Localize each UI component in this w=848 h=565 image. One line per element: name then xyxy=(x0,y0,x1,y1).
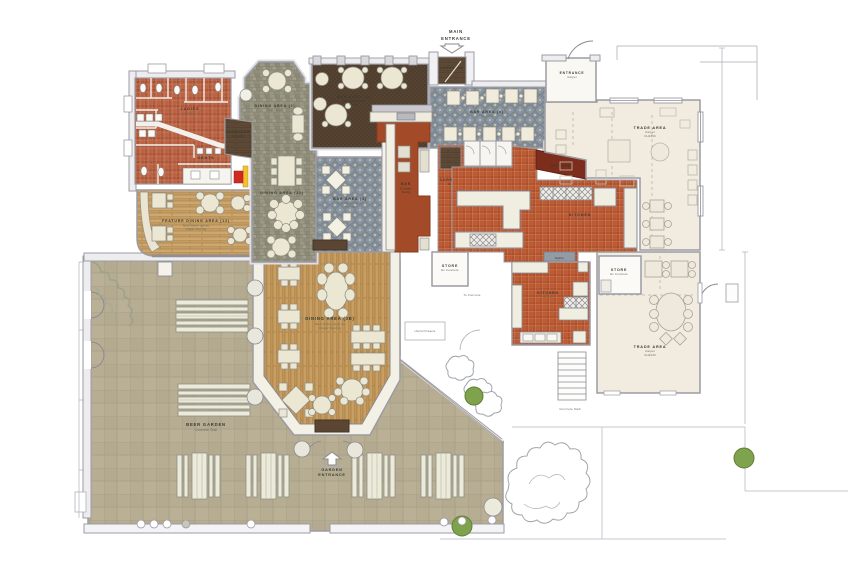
svg-text:Concrete Slab: Concrete Slab xyxy=(195,428,218,432)
svg-text:flooring: flooring xyxy=(349,103,359,107)
svg-text:flooring: flooring xyxy=(345,205,356,209)
svg-text:timber flooring: timber flooring xyxy=(319,326,341,330)
svg-text:New timber: New timber xyxy=(231,134,244,138)
svg-text:ENTRANCE: ENTRANCE xyxy=(441,36,471,41)
svg-text:ENTRANCE: ENTRANCE xyxy=(440,66,463,70)
svg-text:DINING AREA (3B): DINING AREA (3B) xyxy=(305,316,354,321)
svg-text:flooring: flooring xyxy=(402,190,411,194)
svg-text:Concrete Slab: Concrete Slab xyxy=(559,407,581,411)
svg-text:Jayline: Jayline xyxy=(554,256,564,260)
svg-text:To Concrete: To Concrete xyxy=(463,293,481,297)
svg-text:ENTRANCE: ENTRANCE xyxy=(318,473,346,477)
svg-text:BAR: BAR xyxy=(401,182,411,186)
svg-text:New carpet: New carpet xyxy=(267,108,283,112)
svg-text:FEATURE DINING AREA (12): FEATURE DINING AREA (12) xyxy=(162,219,230,223)
svg-text:CORRIDOR: CORRIDOR xyxy=(226,130,250,134)
svg-text:Useful Dreams: Useful Dreams xyxy=(414,329,435,333)
svg-text:Ex Tile: Ex Tile xyxy=(185,111,195,115)
svg-text:KITCHEN: KITCHEN xyxy=(551,164,571,168)
svg-text:New tile: New tile xyxy=(481,114,493,118)
svg-text:DINING AREA (12): DINING AREA (12) xyxy=(260,191,304,195)
svg-text:Carpet: Carpet xyxy=(567,75,577,79)
svg-text:timber flooring: timber flooring xyxy=(186,227,207,231)
svg-text:Ex tile: Ex tile xyxy=(575,217,584,221)
svg-text:CH2240: CH2240 xyxy=(644,353,656,357)
svg-text:MAIN: MAIN xyxy=(449,29,463,34)
svg-text:Ex Concrete: Ex Concrete xyxy=(441,268,459,272)
svg-text:Ex Tile: Ex Tile xyxy=(543,295,553,299)
svg-text:CH2240: CH2240 xyxy=(644,134,656,138)
svg-text:BEER GARDEN: BEER GARDEN xyxy=(186,422,226,427)
svg-text:Ex Concrete: Ex Concrete xyxy=(610,272,628,276)
svg-text:Ex Tile: Ex Tile xyxy=(201,160,211,164)
svg-text:GARDEN: GARDEN xyxy=(321,468,342,472)
